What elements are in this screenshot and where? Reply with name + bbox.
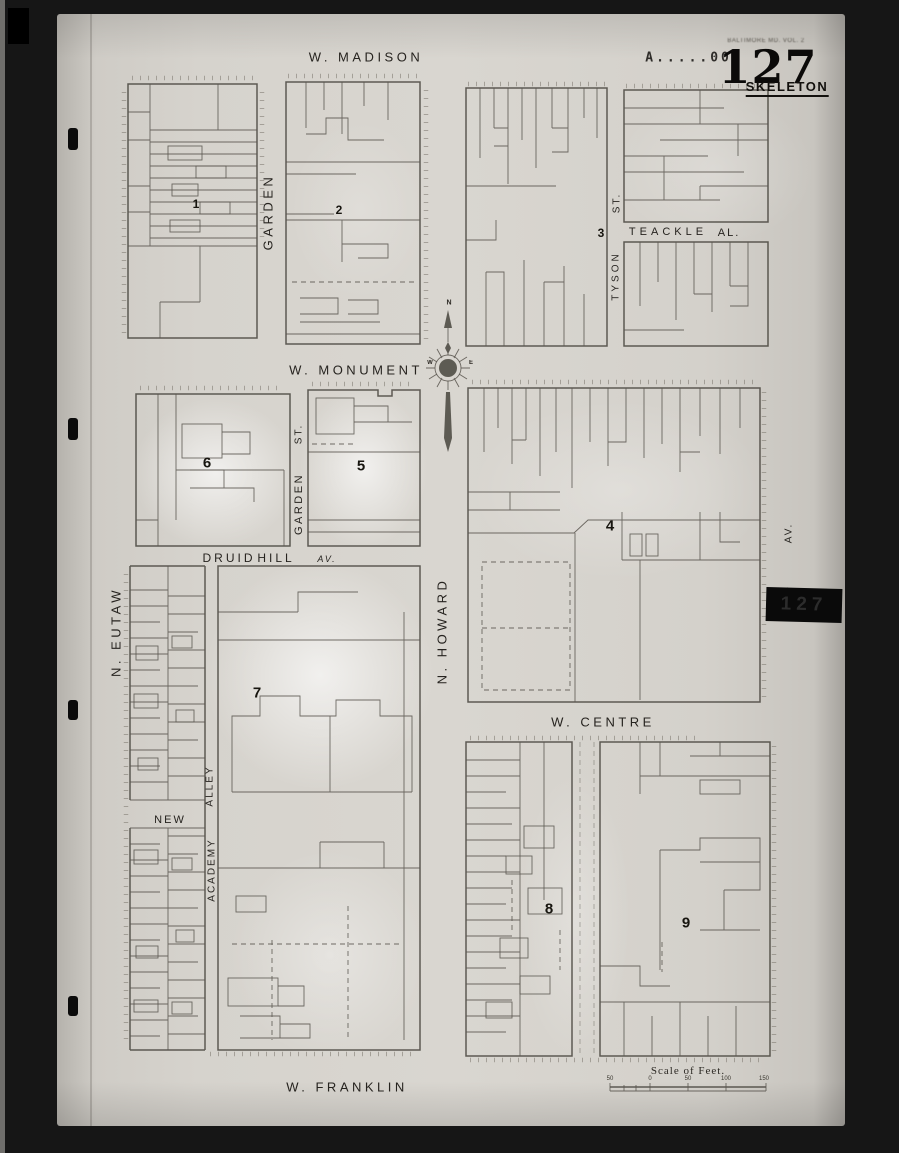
- street-label-new: NEW: [154, 814, 186, 826]
- street-label-druid-av: AV.: [317, 554, 336, 564]
- street-label-academy: ACADEMY: [207, 838, 218, 901]
- index-tab: 127: [766, 587, 843, 623]
- binder-hole: [68, 418, 78, 440]
- street-label-n-howard: N. HOWARD: [435, 578, 450, 685]
- block-number-7: 7: [253, 685, 261, 702]
- street-label-druid: DRUID: [203, 551, 256, 565]
- block-number-9: 9: [682, 915, 690, 932]
- binder-hole: [68, 128, 78, 150]
- scan-corner-mark: [8, 8, 29, 44]
- block-number-1: 1: [193, 197, 200, 211]
- page-crease: [90, 14, 92, 1126]
- scale-tick-label: 50: [607, 1076, 614, 1082]
- compass-north-label: N: [446, 300, 451, 307]
- block-number-8: 8: [545, 901, 553, 918]
- street-label-w-franklin: W. FRANKLIN: [286, 1080, 408, 1095]
- block-number-6: 6: [203, 455, 211, 472]
- index-tab-number: 127: [780, 593, 827, 616]
- compass-west-label: W: [427, 360, 433, 366]
- street-label-alley: ALLEY: [205, 765, 216, 806]
- street-label-n-eutaw: N. EUTAW: [109, 587, 124, 677]
- street-label-tyson: TYSON: [611, 251, 622, 300]
- map-page: [57, 14, 845, 1126]
- street-label-garden: GARDEN: [261, 174, 276, 251]
- scale-tick-label: 150: [759, 1076, 769, 1082]
- street-label-w-monument: W. MONUMENT: [289, 363, 423, 378]
- scan-edge: [0, 0, 5, 1153]
- street-label-w-centre: W. CENTRE: [551, 715, 655, 730]
- block-number-5: 5: [357, 458, 365, 475]
- street-label-teackle: TEACKLE: [629, 226, 707, 238]
- sheet-type-label: SKELETON: [746, 79, 829, 97]
- street-label-tyson-st-suffix: ST.: [612, 193, 623, 213]
- street-label-teackle-al: AL.: [718, 227, 741, 239]
- scanned-map-sheet: BALTIMORE MD. VOL. 2 A.....002 127 SKELE…: [0, 0, 899, 1153]
- block-number-2: 2: [336, 203, 343, 217]
- scale-tick-label: 50: [685, 1076, 692, 1082]
- street-label-hill: HILL: [257, 551, 294, 565]
- street-label-garden-st-suffix: ST.: [294, 424, 305, 444]
- street-label-park-av-suffix: AV.: [784, 523, 795, 543]
- street-label-garden-st: GARDEN: [293, 473, 305, 535]
- block-number-3: 3: [598, 226, 605, 240]
- compass-east-label: E: [469, 360, 473, 366]
- scale-tick-label: 0: [648, 1076, 651, 1082]
- street-label-w-madison: W. MADISON: [309, 50, 423, 65]
- scale-tick-label: 100: [721, 1076, 731, 1082]
- binder-hole: [68, 996, 78, 1016]
- binder-hole: [68, 700, 78, 720]
- block-number-4: 4: [606, 518, 614, 535]
